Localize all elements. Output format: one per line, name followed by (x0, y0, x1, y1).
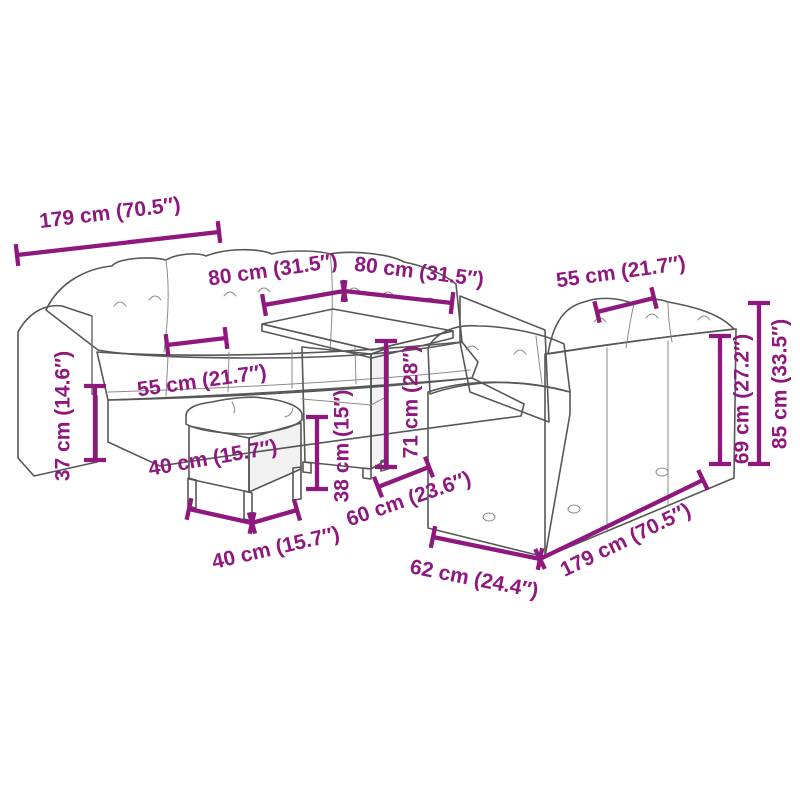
right-sofa-back-cushions (548, 298, 734, 354)
dimension-tick-start-left-cushion-width (166, 334, 169, 356)
dimension-tick-start-table-width (343, 280, 345, 302)
dimension-table-depth: 80 cm (31.5″) (207, 250, 346, 316)
dimension-left-cushion-width: 55 cm (21.7″) (136, 327, 268, 401)
dimension-line-table-width (344, 291, 452, 303)
product-dimension-diagram: 179 cm (70.5″)80 cm (31.5″)80 cm (31.5″)… (0, 0, 800, 800)
dimension-label-seat-height: 37 cm (14.6″) (52, 351, 75, 481)
dimension-label-right-sofa-depth: 62 cm (24.4″) (408, 555, 540, 602)
dimension-line-right-cushion-width (597, 298, 654, 312)
dimension-stool-height: 38 cm (15″) (306, 390, 354, 503)
dimension-line-left-sofa-width (17, 232, 219, 255)
dimension-tick-end-right-cushion-width (651, 287, 656, 308)
diagram-canvas: 179 cm (70.5″)80 cm (31.5″)80 cm (31.5″)… (0, 0, 800, 800)
dimension-back-height: 69 cm (27.2″) (709, 334, 754, 464)
dimension-tick-end-left-cushion-width (225, 327, 228, 349)
dimension-seat-height: 37 cm (14.6″) (52, 351, 106, 481)
dimension-line-stool-depth (189, 509, 252, 523)
dimension-label-stool-width: 40 cm (15.7″) (210, 522, 342, 574)
dimension-annotations: 179 cm (70.5″)80 cm (31.5″)80 cm (31.5″)… (16, 193, 792, 603)
dimension-right-cushion-width: 55 cm (21.7″) (555, 252, 687, 323)
right-sofa-left-cushions (428, 326, 570, 394)
dimension-right-sofa-depth: 62 cm (24.4″) (408, 526, 542, 603)
dimension-tick-end-stool-width (294, 499, 300, 520)
dimension-label-left-sofa-width: 179 cm (70.5″) (38, 193, 182, 233)
dimension-label-total-height: 85 cm (33.5″) (769, 319, 792, 449)
dimension-tick-start-right-cushion-width (594, 301, 599, 322)
dimension-line-stool-width (252, 510, 297, 523)
dimension-label-right-cushion-width: 55 cm (21.7″) (555, 252, 687, 293)
table-top (262, 309, 453, 350)
dimension-label-table-height: 71 cm (28″) (400, 346, 423, 459)
dimension-total-height: 85 cm (33.5″) (748, 303, 792, 464)
dimension-tick-start-left-sofa-width (16, 244, 18, 266)
dimension-tick-end-left-sofa-width (218, 221, 220, 243)
dimension-label-table-depth: 80 cm (31.5″) (207, 250, 339, 291)
dimension-label-stool-height: 38 cm (15″) (331, 390, 354, 503)
dimension-stool-width: 40 cm (15.7″) (210, 499, 342, 573)
right-sofa-feet (483, 468, 668, 521)
dimension-label-table-width: 80 cm (31.5″) (353, 253, 485, 292)
dimension-tick-start-table-depth (262, 294, 266, 316)
dimension-label-back-height: 69 cm (27.2″) (731, 334, 754, 464)
dimension-left-sofa-width: 179 cm (70.5″) (16, 193, 220, 266)
dimension-table-width: 80 cm (31.5″) (343, 253, 485, 314)
left-sofa-right-arm (460, 296, 549, 422)
dimension-line-right-sofa-depth (433, 537, 540, 559)
dimension-tick-end-table-width (451, 292, 453, 314)
dimension-line-left-cushion-width (167, 338, 226, 345)
